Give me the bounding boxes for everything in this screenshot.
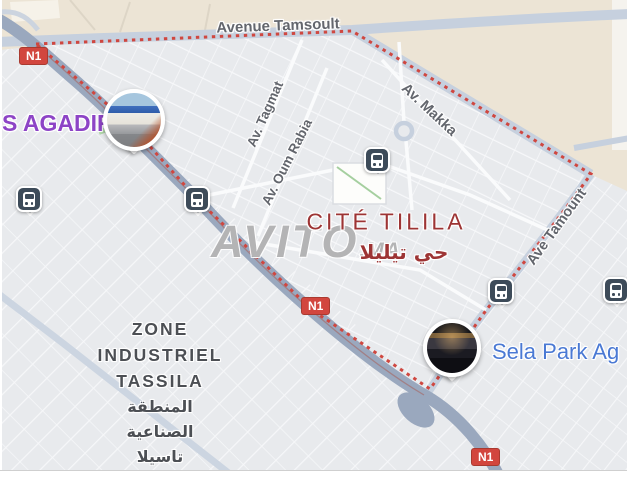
bus-front-icon xyxy=(364,147,390,173)
map-viewport[interactable]: AVITO.MA Avenue Tamsoult Av. Tagmat Av. … xyxy=(0,0,627,480)
district-label-cite-tilila: CITÉ TILILA xyxy=(306,209,465,236)
mall-night-photo xyxy=(423,319,481,377)
route-badge-n1-bottom: N1 xyxy=(471,448,500,466)
bus-station-icon[interactable] xyxy=(364,147,392,179)
roundabout xyxy=(396,123,412,139)
bus-station-icon[interactable] xyxy=(184,186,212,218)
land-light-corner xyxy=(612,0,627,150)
poi-label-sela-park[interactable]: Sela Park Ag xyxy=(492,339,619,365)
bus-front-icon xyxy=(603,277,627,303)
photo-marker-mall[interactable] xyxy=(423,319,481,393)
route-badge-n1-top: N1 xyxy=(19,47,48,65)
bus-front-icon xyxy=(16,186,42,212)
zone-line-ar-3: تاسيلا xyxy=(98,444,223,469)
zone-line-3: TASSILA xyxy=(98,368,223,394)
poi-label-agadir[interactable]: S AGADIR xyxy=(2,110,114,137)
bus-front-icon xyxy=(488,278,514,304)
photo-marker-storefront[interactable] xyxy=(103,89,165,167)
frame-bottom xyxy=(0,470,627,480)
bus-station-icon[interactable] xyxy=(16,186,44,218)
zone-line-ar-1: المنطقة xyxy=(98,394,223,419)
route-badge-n1-middle: N1 xyxy=(301,297,330,315)
district-label-cite-tilila-arabic: حي تيليلا xyxy=(360,240,449,264)
storefront-photo xyxy=(103,89,165,151)
district-label-zone-industriel: ZONE INDUSTRIEL TASSILA المنطقة الصناعية… xyxy=(98,316,223,469)
bus-station-icon[interactable] xyxy=(603,277,627,309)
zone-line-ar-2: الصناعية xyxy=(98,419,223,444)
zone-line-2: INDUSTRIEL xyxy=(98,342,223,368)
bus-front-icon xyxy=(184,186,210,212)
bus-station-icon[interactable] xyxy=(488,278,516,310)
zone-line-1: ZONE xyxy=(98,316,223,342)
frame-left xyxy=(0,0,2,480)
